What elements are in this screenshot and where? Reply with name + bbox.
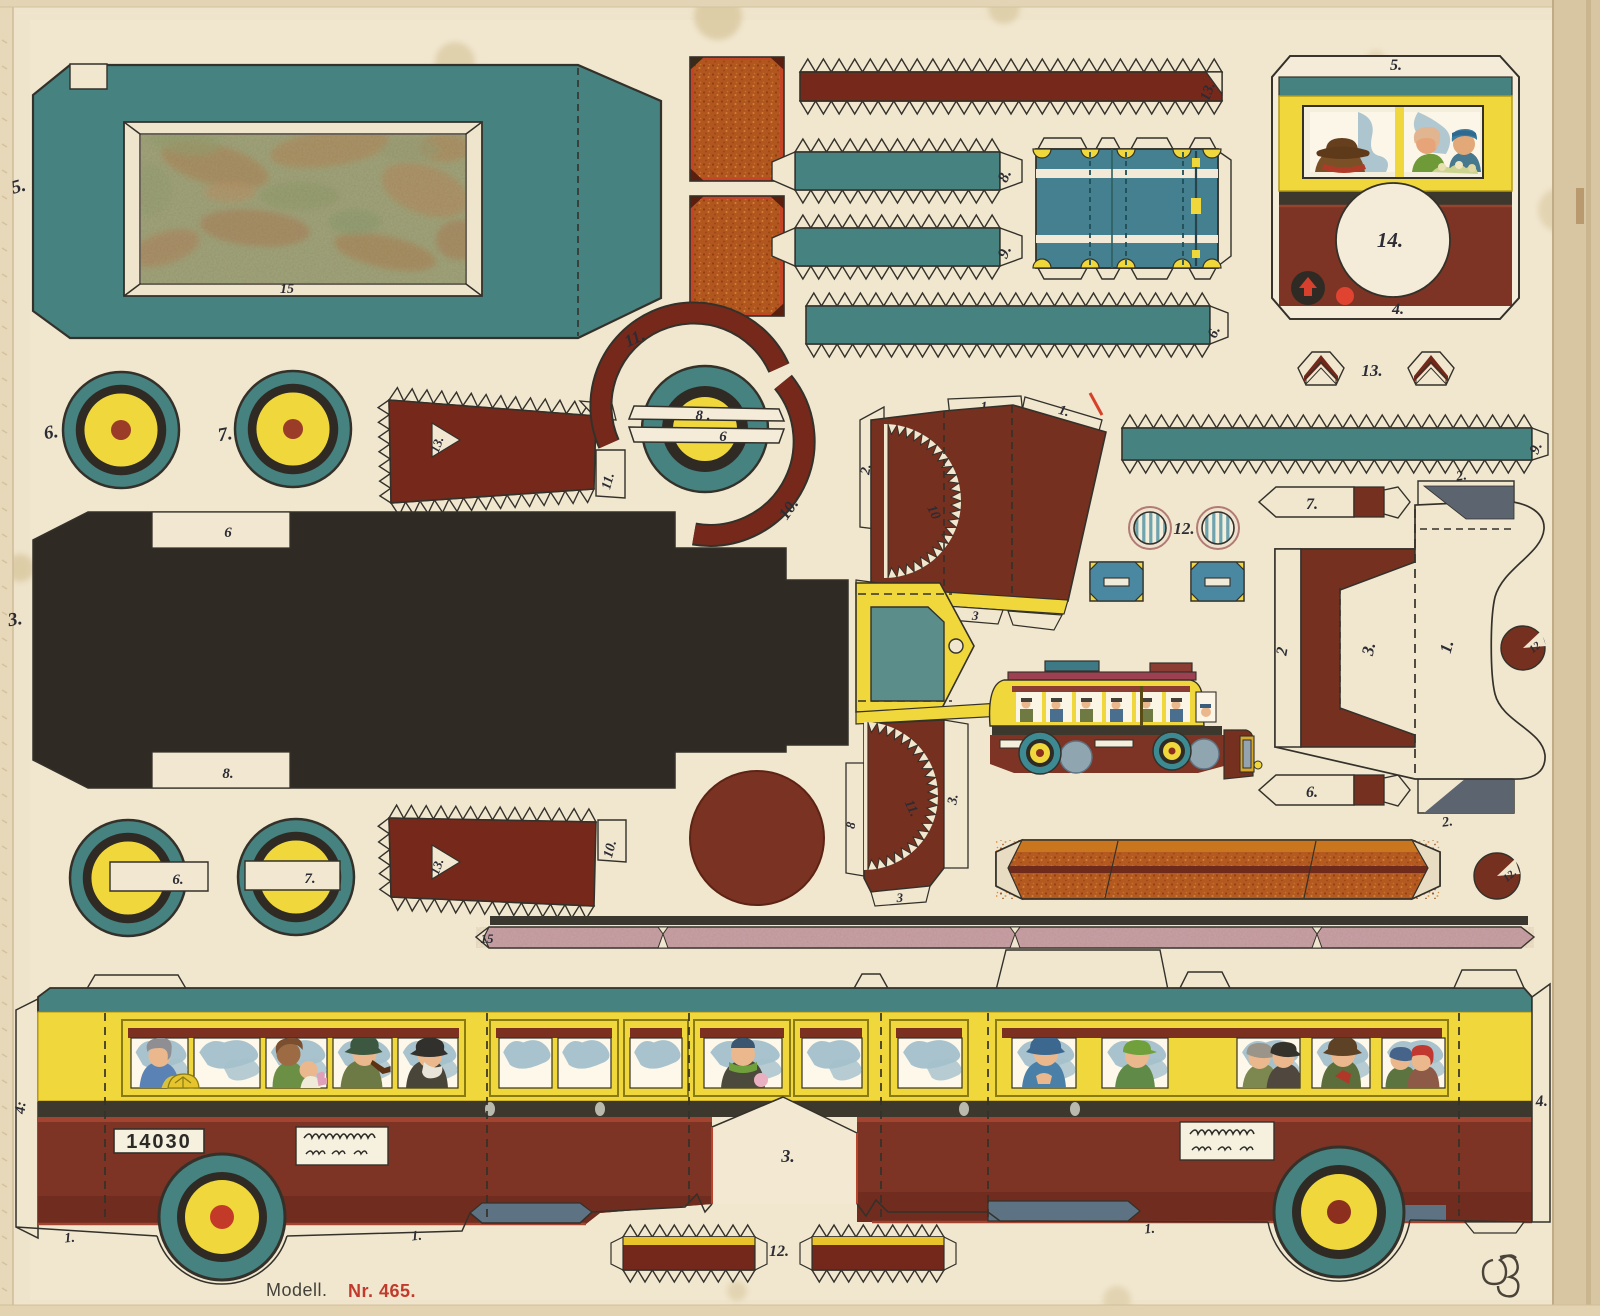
svg-text:6.: 6. [1306, 784, 1318, 801]
svg-text:4.: 4. [1534, 1093, 1548, 1111]
svg-text:13.: 13. [1361, 361, 1382, 380]
svg-text:12.: 12. [1173, 519, 1194, 538]
svg-text:3.: 3. [780, 1146, 795, 1166]
svg-text:1.: 1. [64, 1231, 76, 1247]
svg-text:1.: 1. [1144, 1222, 1156, 1238]
svg-text:6: 6 [719, 429, 727, 445]
svg-text:4.: 4. [1391, 301, 1404, 318]
svg-text:8.: 8. [222, 766, 233, 782]
svg-text:3: 3 [895, 890, 904, 905]
svg-text:2.: 2. [1440, 814, 1453, 830]
svg-text:8 .: 8 . [696, 408, 711, 424]
svg-text:15: 15 [481, 931, 495, 946]
svg-text:1.: 1. [411, 1229, 423, 1245]
svg-text:4:: 4: [12, 1101, 29, 1116]
svg-text:14.: 14. [1377, 228, 1403, 252]
svg-text:7.: 7. [1306, 496, 1318, 513]
svg-text:6: 6 [224, 525, 232, 541]
svg-text:5.: 5. [1390, 57, 1402, 74]
svg-text:Modell.: Modell. [266, 1280, 328, 1300]
svg-text:14030: 14030 [126, 1131, 192, 1153]
svg-text:7.: 7. [304, 871, 315, 887]
svg-text:12.: 12. [769, 1243, 789, 1260]
svg-text:6.: 6. [172, 872, 183, 888]
svg-text:15: 15 [280, 282, 294, 297]
svg-text:2.: 2. [1454, 468, 1467, 484]
svg-text:Nr. 465.: Nr. 465. [348, 1281, 416, 1301]
